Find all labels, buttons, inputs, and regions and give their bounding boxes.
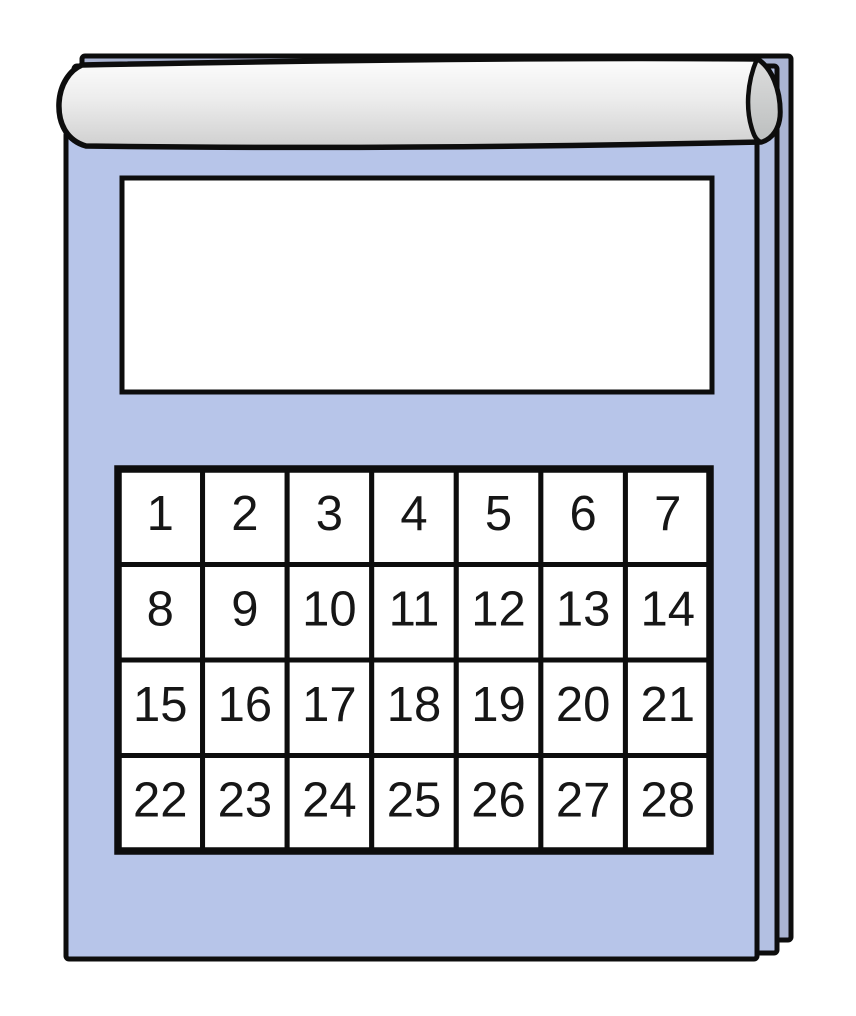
day-number-16: 16	[218, 678, 273, 732]
day-number-13: 13	[556, 582, 611, 636]
day-number-12: 12	[471, 582, 526, 636]
binding-bar-body	[59, 58, 780, 147]
day-number-23: 23	[218, 773, 273, 827]
calendar-drawing: 1234567891011121314151617181920212223242…	[0, 0, 856, 1016]
day-grid: 1234567891011121314151617181920212223242…	[118, 469, 710, 851]
day-number-28: 28	[640, 773, 695, 827]
day-number-22: 22	[133, 773, 188, 827]
day-number-7: 7	[654, 487, 681, 541]
title-box	[122, 178, 712, 392]
day-number-4: 4	[400, 487, 427, 541]
day-number-15: 15	[133, 678, 188, 732]
day-number-25: 25	[387, 773, 442, 827]
day-number-21: 21	[640, 678, 695, 732]
day-number-18: 18	[387, 678, 442, 732]
day-number-14: 14	[640, 582, 695, 636]
day-number-24: 24	[302, 773, 357, 827]
day-number-17: 17	[302, 678, 357, 732]
day-number-20: 20	[556, 678, 611, 732]
day-number-27: 27	[556, 773, 611, 827]
day-number-9: 9	[231, 582, 258, 636]
day-number-5: 5	[485, 487, 512, 541]
day-number-26: 26	[471, 773, 526, 827]
day-number-11: 11	[389, 582, 440, 636]
day-number-2: 2	[231, 487, 258, 541]
binding-bar	[59, 58, 780, 147]
day-number-3: 3	[316, 487, 343, 541]
day-number-10: 10	[302, 582, 357, 636]
day-number-1: 1	[147, 487, 174, 541]
day-number-8: 8	[147, 582, 174, 636]
day-number-6: 6	[570, 487, 597, 541]
day-number-19: 19	[471, 678, 526, 732]
calendar-illustration: 1234567891011121314151617181920212223242…	[0, 0, 856, 1016]
